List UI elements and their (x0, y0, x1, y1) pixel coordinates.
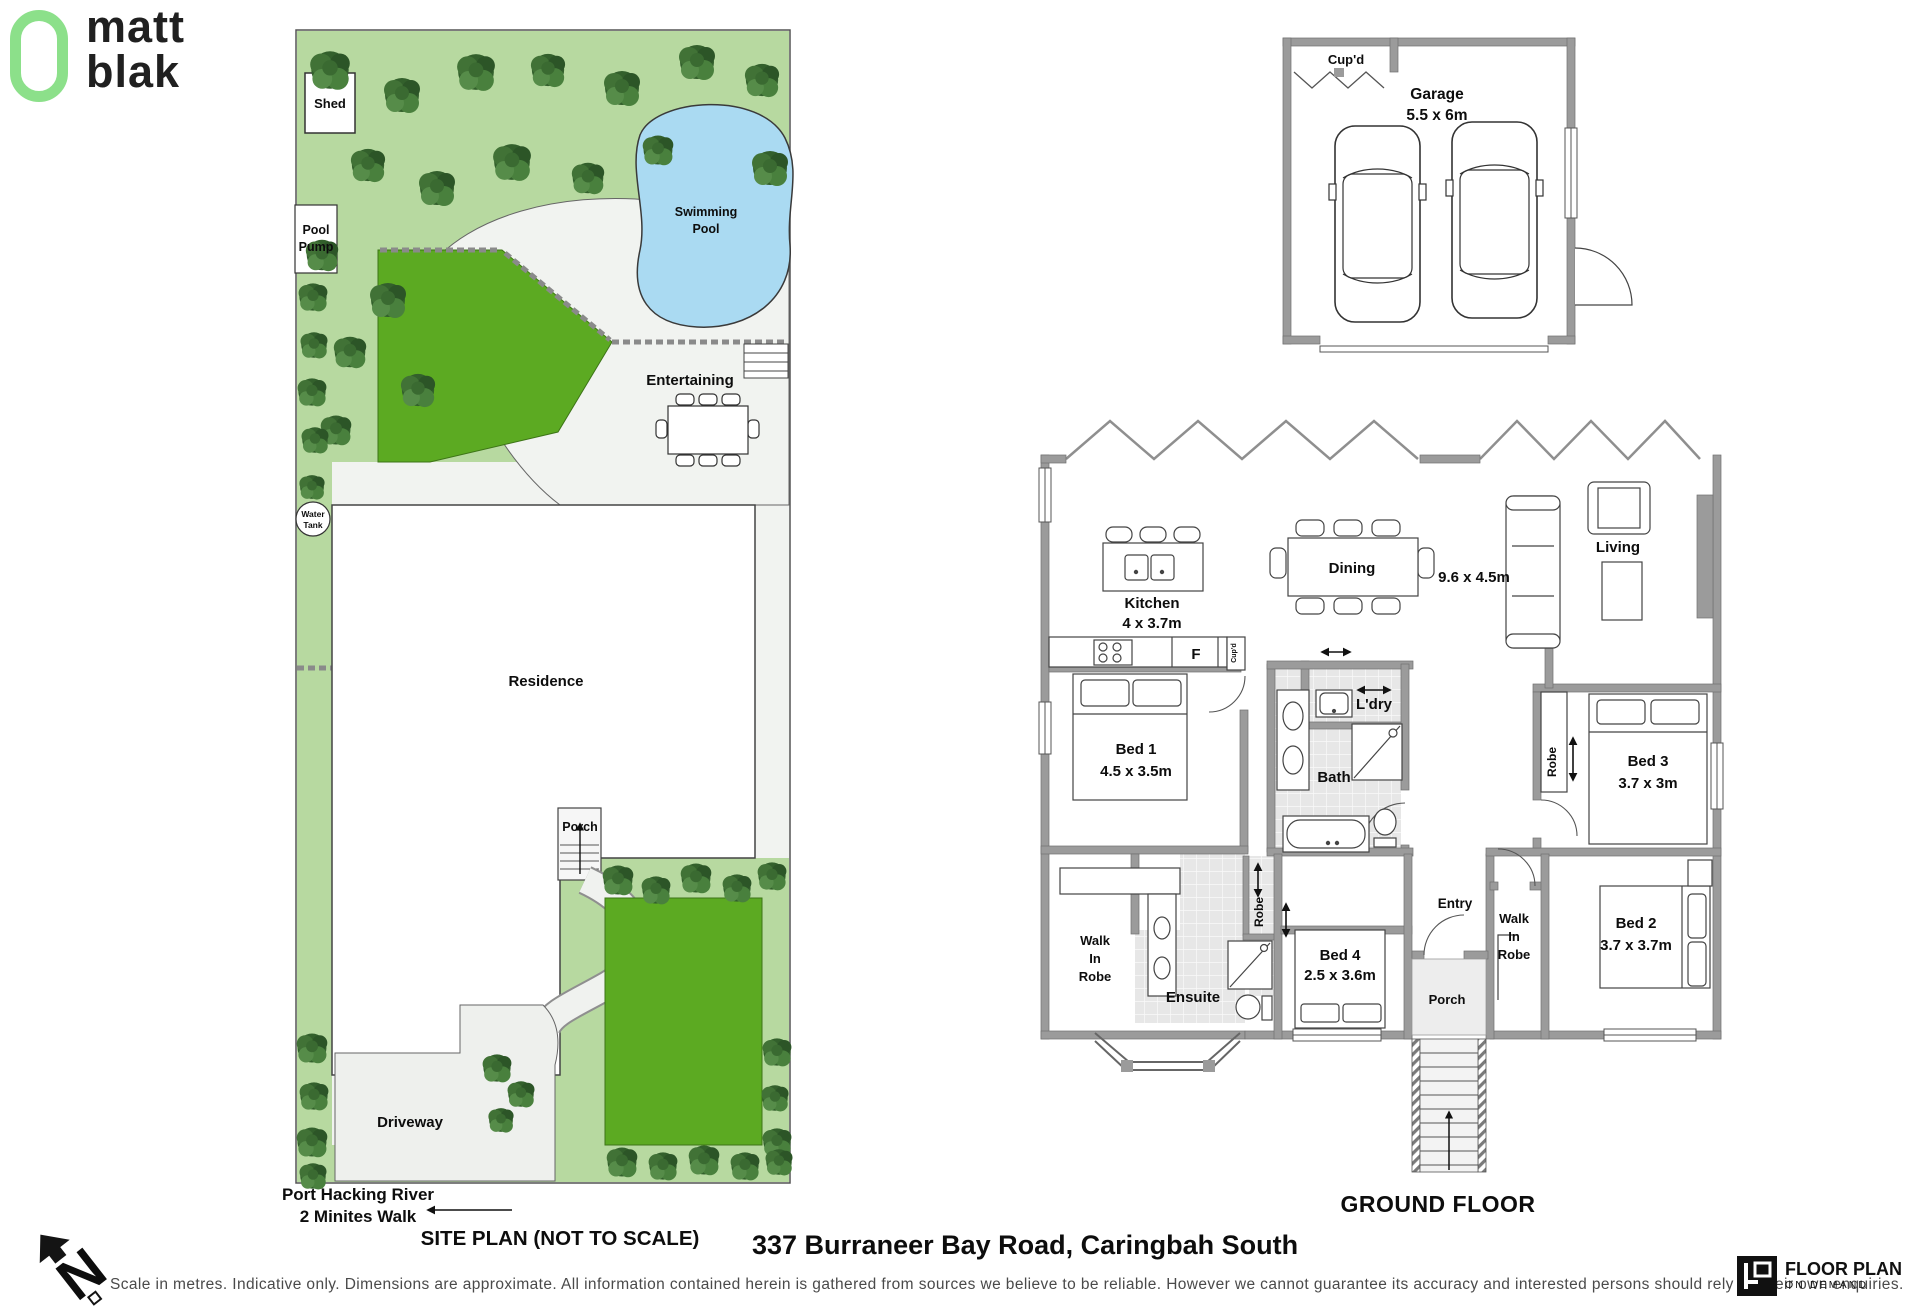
label-bed3: Bed 3 (1628, 753, 1669, 770)
label-bed1-size: 4.5 x 3.5m (1100, 763, 1172, 780)
label-site-plan-caption: SITE PLAN (NOT TO SCALE) (421, 1227, 700, 1250)
garage-window (1565, 128, 1577, 218)
label-river-1: Port Hacking River (282, 1185, 434, 1204)
cooktop (1094, 640, 1132, 665)
label-entry: Entry (1438, 896, 1473, 911)
label-residence: Residence (508, 673, 583, 690)
label-dining: Dining (1329, 560, 1376, 577)
label-bed2: Bed 2 (1616, 915, 1657, 932)
label-site-porch: Porch (562, 820, 597, 834)
label-wir2-l3: Robe (1498, 947, 1531, 962)
label-floor-porch: Porch (1429, 992, 1466, 1007)
label-bed4: Bed 4 (1320, 947, 1362, 964)
label-water-tank-2: Tank (303, 520, 322, 530)
label-bed1: Bed 1 (1116, 741, 1157, 758)
fpod-line1: FLOOR PLAN (1785, 1260, 1902, 1279)
entry-porch (1412, 959, 1486, 1172)
label-ensuite: Ensuite (1166, 989, 1220, 1006)
property-address: 337 Burraneer Bay Road, Caringbah South (752, 1230, 1298, 1261)
label-swimming-pool-1: Swimming (675, 205, 738, 219)
label-river-2: 2 Minites Walk (300, 1207, 417, 1226)
fpod-icon (1737, 1256, 1777, 1296)
label-laundry: L'dry (1356, 696, 1393, 713)
label-wir1-l3: Robe (1079, 969, 1112, 984)
label-garage-size: 5.5 x 6m (1406, 107, 1467, 124)
deck-stairs (744, 344, 788, 378)
label-ground-floor: GROUND FLOOR (1340, 1191, 1535, 1217)
label-pool-pump-2: Pump (299, 240, 334, 254)
laundry-fixtures (1316, 690, 1352, 717)
bed1-furniture (1073, 674, 1187, 800)
label-kitchen-cupboard: Cup'd (1231, 643, 1238, 663)
label-wir2-l2: In (1508, 929, 1520, 944)
label-garage-cupboard: Cup'd (1328, 52, 1364, 67)
label-pool-pump-1: Pool (302, 223, 329, 237)
label-garage-name: Garage (1410, 86, 1464, 103)
label-bath: Bath (1317, 769, 1350, 786)
water-tank (296, 502, 330, 536)
garage-door (1320, 346, 1548, 352)
label-driveway: Driveway (377, 1114, 444, 1131)
label-wir1-l2: In (1089, 951, 1101, 966)
label-living: Living (1596, 539, 1640, 556)
label-living-dining-size: 9.6 x 4.5m (1438, 569, 1510, 586)
disclaimer-text: Scale in metres. Indicative only. Dimens… (110, 1276, 1904, 1294)
floor-plan-on-demand-logo: FLOOR PLAN ON DEMAND (1737, 1256, 1902, 1296)
label-fridge: F (1191, 646, 1200, 663)
label-water-tank-1: Water (301, 509, 325, 519)
deck-zigzag (1066, 421, 1700, 459)
label-wir1-l1: Walk (1080, 933, 1111, 948)
label-bed3-robe: Robe (1545, 747, 1559, 777)
north-arrow-icon: N (20, 1218, 130, 1313)
car-right (1446, 122, 1543, 318)
label-kitchen-size: 4 x 3.7m (1122, 615, 1181, 632)
fpod-line2: ON DEMAND (1785, 1279, 1902, 1292)
site-plan: Shed Pool Pump Swimming Pool Entertainin… (0, 0, 820, 1260)
garage-plan: Cup'd Garage 5.5 x 6m (1270, 20, 1660, 370)
label-swimming-pool-2: Pool (692, 222, 719, 236)
label-bed4-size: 2.5 x 3.6m (1304, 967, 1376, 984)
label-bed3-size: 3.7 x 3m (1618, 775, 1677, 792)
label-entertaining: Entertaining (646, 372, 734, 389)
car-left (1329, 126, 1426, 322)
lower-lawn (605, 898, 762, 1145)
label-robe-hall: Robe (1252, 897, 1266, 927)
label-bed2-size: 3.7 x 3.7m (1600, 937, 1672, 954)
ground-floor-plan: Kitchen 4 x 3.7m Dining 9.6 x 4.5m Livin… (1030, 410, 1740, 1240)
garage-side-door (1575, 248, 1632, 305)
label-wir2-l1: Walk (1499, 911, 1530, 926)
label-kitchen: Kitchen (1124, 595, 1179, 612)
label-shed: Shed (314, 96, 346, 111)
